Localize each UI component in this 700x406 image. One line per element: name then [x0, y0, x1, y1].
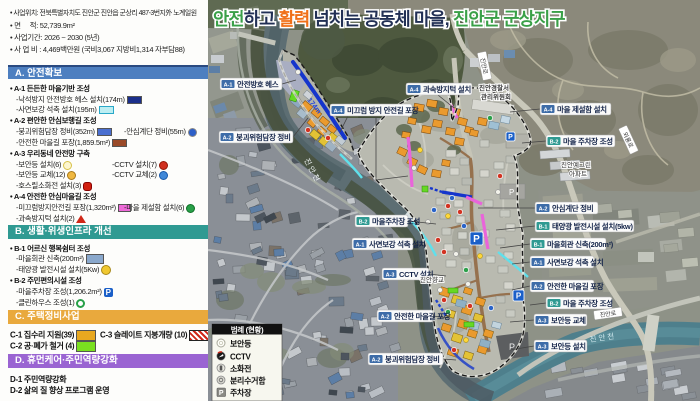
svg-text:A-3: A-3	[538, 318, 547, 324]
svg-text:사면보강 석축 설치: 사면보강 석축 설치	[369, 239, 426, 249]
svg-text:진안예그린: 진안예그린	[561, 160, 591, 169]
svg-text:안전하고 활력 넘치는 공동체 마을, 진안군 군상지구: 안전하고 활력 넘치는 공동체 마을, 진안군 군상지구	[213, 9, 565, 29]
svg-text:보안등 설치: 보안등 설치	[551, 341, 586, 351]
svg-text:A-1: A-1	[224, 82, 233, 88]
svg-text:P: P	[508, 134, 513, 141]
svg-text:안전한 마을길 포장: 안전한 마을길 포장	[547, 281, 604, 291]
svg-text:붕괴위험담장 정비: 붕괴위험담장 정비	[385, 354, 440, 364]
svg-text:A-4: A-4	[410, 87, 420, 93]
svg-text:마을 제설함 설치: 마을 제설함 설치	[557, 104, 607, 114]
svg-text:안전한 마을길 포장: 안전한 마을길 포장	[394, 311, 451, 321]
svg-text:마을주차장 조성: 마을주차장 조성	[372, 216, 420, 226]
svg-text:보안등: 보안등	[230, 339, 252, 349]
svg-text:A-2: A-2	[539, 206, 548, 212]
svg-text:B-2: B-2	[359, 219, 368, 225]
svg-text:미끄럼 방지 안전길 포장: 미끄럼 방지 안전길 포장	[347, 105, 419, 115]
svg-text:P: P	[509, 188, 514, 197]
svg-text:소화전: 소화전	[230, 364, 251, 374]
svg-text:A-3: A-3	[538, 344, 547, 350]
svg-text:마을회관 신축(200m²): 마을회관 신축(200m²)	[547, 239, 614, 249]
svg-text:B-2: B-2	[550, 301, 559, 307]
svg-text:붕괴위험담장 정비: 붕괴위험담장 정비	[236, 132, 291, 142]
svg-text:A-1: A-1	[356, 242, 365, 248]
svg-text:P: P	[473, 234, 480, 245]
svg-text:CCTV: CCTV	[230, 353, 252, 362]
svg-text:A-4: A-4	[334, 108, 344, 114]
svg-text:A-2: A-2	[534, 284, 543, 290]
svg-text:A-3: A-3	[386, 272, 395, 278]
svg-text:분리수거함: 분리수거함	[230, 376, 266, 386]
svg-text:P: P	[219, 390, 224, 397]
svg-text:A-1: A-1	[534, 260, 543, 266]
svg-text:진안경찰서: 진안경찰서	[479, 83, 509, 92]
svg-text:P: P	[509, 342, 515, 352]
svg-text:태양광 발전시설 설치(5kw): 태양광 발전시설 설치(5kw)	[552, 221, 633, 231]
svg-text:B-1: B-1	[534, 242, 543, 248]
svg-text:과속방지턱 설치: 과속방지턱 설치	[423, 84, 471, 94]
svg-text:A-4: A-4	[544, 107, 554, 113]
svg-text:주차장: 주차장	[230, 388, 252, 398]
svg-text:아파트: 아파트	[569, 169, 587, 178]
svg-text:A-2: A-2	[223, 135, 232, 141]
svg-text:보안등 교체: 보안등 교체	[551, 315, 586, 325]
svg-text:B-1: B-1	[539, 224, 548, 230]
svg-text:마을 주차장 조성: 마을 주차장 조성	[563, 136, 613, 146]
svg-text:P: P	[516, 292, 522, 301]
svg-text:안전방호 헤스: 안전방호 헤스	[237, 79, 279, 89]
svg-text:A-2: A-2	[381, 314, 390, 320]
svg-text:범례 (현황): 범례 (현황)	[231, 325, 264, 335]
svg-text:안심계단 정비: 안심계단 정비	[552, 203, 594, 213]
svg-text:B-2: B-2	[550, 139, 559, 145]
svg-text:A-2: A-2	[372, 357, 381, 363]
svg-text:진안향교: 진안향교	[420, 275, 444, 284]
svg-text:관리위원회: 관리위원회	[481, 92, 511, 101]
svg-text:마을 주차장 조성: 마을 주차장 조성	[563, 298, 613, 308]
svg-text:사면보강 석축 설치: 사면보강 석축 설치	[547, 257, 604, 267]
